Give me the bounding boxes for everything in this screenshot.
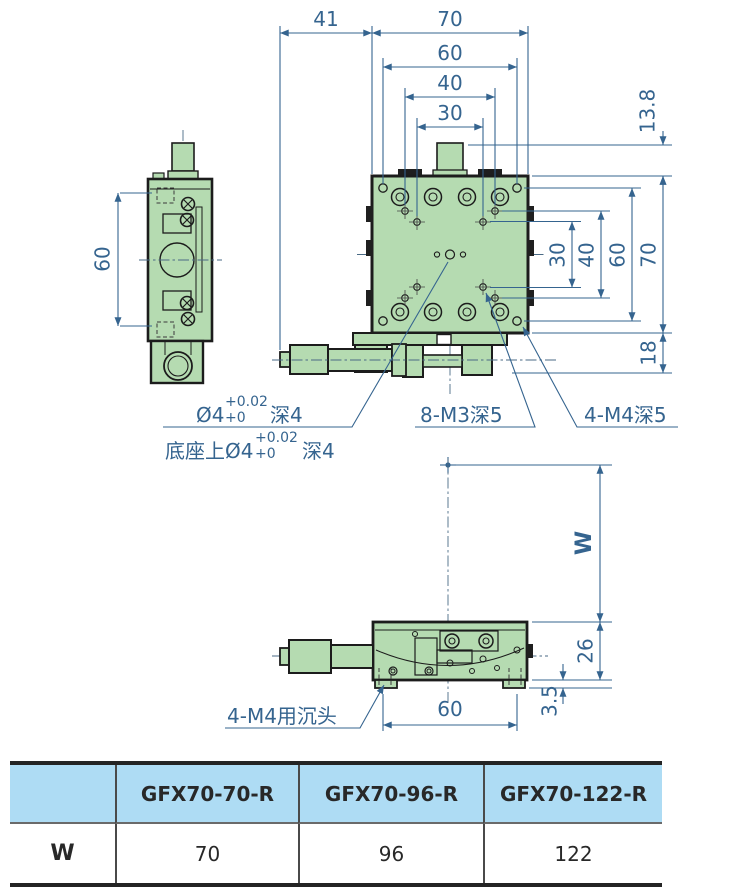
counterbore-note: 4-M4用沉头 <box>225 685 384 728</box>
note-top-hole-dia: Ø4 <box>196 403 224 427</box>
technical-drawing: .dim{stroke:#35648f;stroke-width:1.1;fil… <box>0 0 735 760</box>
dim-front-w: W <box>572 531 597 555</box>
side-micrometer-block <box>151 341 203 383</box>
dim-side-60: 60 <box>91 246 115 271</box>
note-top-hole-tol-upper: +0.02 <box>225 394 268 410</box>
dim-top-60: 60 <box>437 41 462 65</box>
table-value-70: 70 <box>115 824 298 883</box>
table-header-blank <box>10 765 115 824</box>
dim-right-13-8: 13.8 <box>636 89 660 134</box>
table-value-96: 96 <box>298 824 483 883</box>
front-micrometer <box>280 640 373 673</box>
front-view: W 26 3.5 60 4-M4用沉头 <box>225 457 612 731</box>
front-dimensions: W 26 3.5 60 <box>383 465 612 731</box>
note-m3-holes: 8-M3深5 <box>420 403 503 427</box>
table-header-gfx70-122-r: GFX70-122-R <box>483 765 662 824</box>
table-header-gfx70-96-r: GFX70-96-R <box>298 765 483 824</box>
note-base-hole-prefix: 底座上Ø4 <box>165 439 253 463</box>
dim-right-60: 60 <box>606 242 630 267</box>
dim-top-41: 41 <box>313 7 338 31</box>
dim-top-30: 30 <box>437 101 462 125</box>
dim-right-40: 40 <box>575 242 599 267</box>
note-top-hole-tol-lower: +0 <box>225 410 246 426</box>
top-view-base <box>272 333 556 377</box>
side-knob-knurl <box>172 143 194 171</box>
dim-front-26: 26 <box>574 638 598 663</box>
side-view: 60 <box>91 130 223 383</box>
dim-front-3-5: 3.5 <box>538 685 562 717</box>
table-row-label-w: W <box>10 824 115 883</box>
note-base-hole-depth: 深4 <box>302 439 335 463</box>
table-value-122: 122 <box>483 824 662 883</box>
dim-right-18: 18 <box>637 340 661 365</box>
note-m4-holes: 4-M4深5 <box>584 403 667 427</box>
note-m4-counterbore: 4-M4用沉头 <box>227 704 337 728</box>
spec-table: GFX70-70-R GFX70-96-R GFX70-122-R W 70 9… <box>10 761 662 887</box>
dim-right-70: 70 <box>637 242 661 267</box>
top-knob-knurl <box>437 143 463 171</box>
top-plate <box>372 176 528 333</box>
drawing-canvas: .dim{stroke:#35648f;stroke-width:1.1;fil… <box>0 0 735 895</box>
note-top-hole-depth: 深4 <box>270 403 303 427</box>
dim-top-40: 40 <box>437 71 462 95</box>
note-base-hole-tol-lower: +0 <box>255 446 276 462</box>
dim-front-60: 60 <box>437 697 462 721</box>
dim-right-30: 30 <box>546 242 570 267</box>
note-base-hole-tol-upper: +0.02 <box>255 430 298 446</box>
micrometer-thimble <box>290 345 328 374</box>
micrometer-thimble-front <box>289 640 331 673</box>
dim-top-70: 70 <box>437 7 462 31</box>
top-view: 41 70 60 40 30 13.8 70 <box>163 7 678 463</box>
table-header-gfx70-70-r: GFX70-70-R <box>115 765 298 824</box>
